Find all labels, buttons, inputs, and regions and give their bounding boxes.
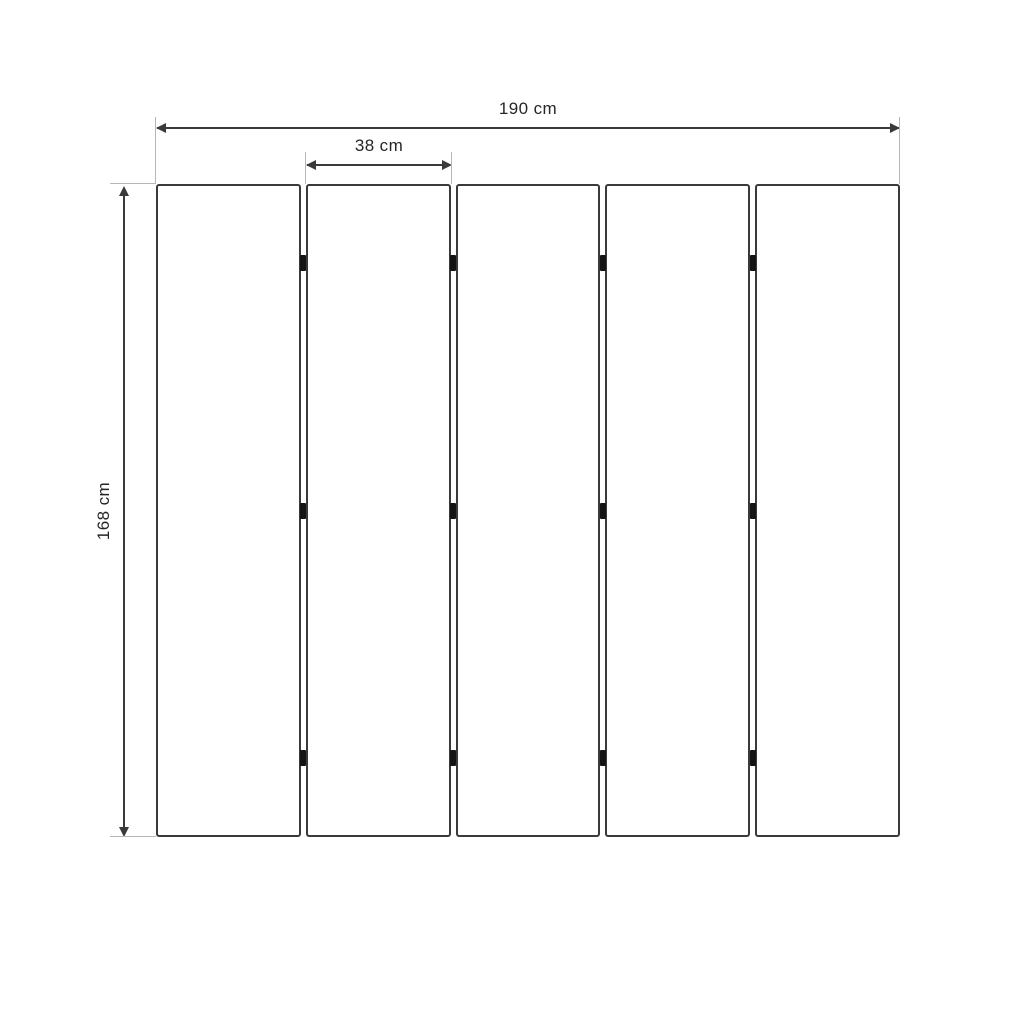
arrowhead-up-icon bbox=[119, 186, 129, 196]
hinge-mark bbox=[450, 750, 456, 766]
height-dimension-line bbox=[123, 195, 125, 828]
total-width-dimension-line bbox=[157, 127, 899, 129]
hinge-mark bbox=[600, 255, 606, 271]
hinge-mark bbox=[300, 750, 306, 766]
extension-line-top bbox=[110, 183, 156, 184]
hinge-mark bbox=[450, 503, 456, 519]
panel-width-label: 38 cm bbox=[306, 134, 452, 158]
hinge-mark bbox=[300, 255, 306, 271]
panel-1 bbox=[156, 184, 301, 837]
panel-width-dimension-line bbox=[307, 164, 449, 166]
arrowhead-left-icon bbox=[306, 160, 316, 170]
hinge-mark bbox=[750, 750, 756, 766]
panel-2 bbox=[306, 184, 451, 837]
hinge-mark bbox=[450, 255, 456, 271]
hinge-mark bbox=[300, 503, 306, 519]
arrowhead-left-icon bbox=[156, 123, 166, 133]
hinge-mark bbox=[750, 503, 756, 519]
extension-line-right bbox=[899, 117, 900, 184]
hinge-mark bbox=[600, 750, 606, 766]
height-label: 168 cm bbox=[92, 466, 116, 556]
extension-line-bottom bbox=[110, 836, 156, 837]
total-width-label: 190 cm bbox=[156, 97, 900, 121]
extension-line-left bbox=[155, 117, 156, 184]
hinge-mark bbox=[750, 255, 756, 271]
panel-3 bbox=[456, 184, 601, 837]
dimension-diagram: 190 cm 38 cm 168 cm bbox=[0, 0, 1024, 1024]
extension-line-right bbox=[451, 152, 452, 184]
panel-5 bbox=[755, 184, 900, 837]
panel-4 bbox=[605, 184, 750, 837]
extension-line-left bbox=[305, 152, 306, 184]
hinge-mark bbox=[600, 503, 606, 519]
